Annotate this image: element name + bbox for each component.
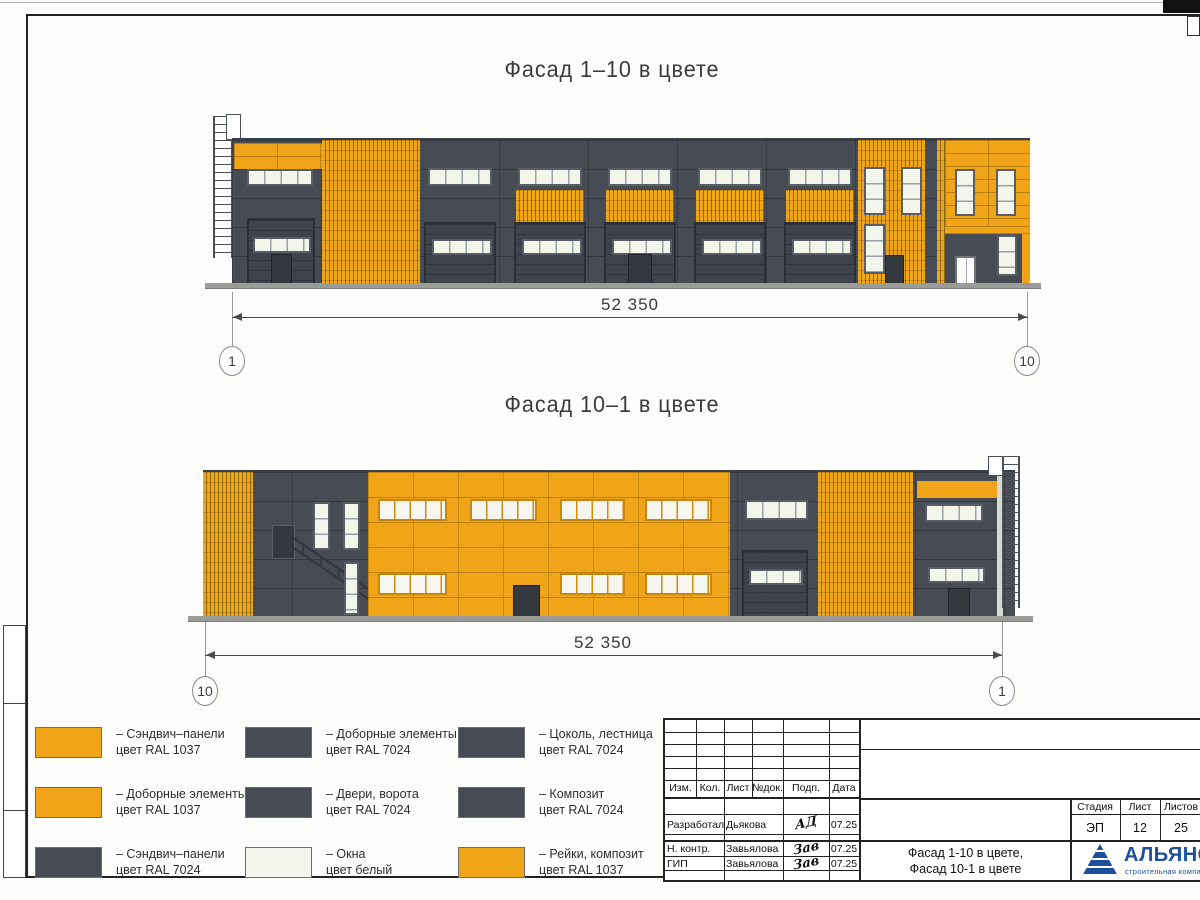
window (928, 567, 985, 583)
legend-label: – Доборные элементыцвет RAL 1037 (116, 786, 247, 819)
window (645, 573, 712, 595)
window (378, 499, 447, 521)
ground-line (188, 616, 1033, 622)
window (522, 239, 582, 255)
sign-date: 07.25 (829, 819, 859, 831)
corner-black-bar (1163, 0, 1200, 13)
facade-1-building (232, 138, 1030, 283)
window (470, 499, 537, 521)
page-top-line (0, 2, 1200, 3)
person-name: Завьялова (726, 858, 782, 870)
window (955, 169, 975, 216)
axis-bubble: 1 (989, 676, 1015, 706)
role-label: Разработал (667, 819, 723, 831)
window (792, 239, 852, 255)
window (901, 167, 922, 215)
window (996, 169, 1016, 216)
ground-line (205, 283, 1041, 289)
legend-item: – Доборные элементыцвет RAL 1037 (35, 787, 247, 819)
window (253, 237, 311, 253)
window (428, 168, 492, 186)
window (645, 499, 712, 521)
orange-panel (917, 481, 1002, 498)
door-white (955, 256, 976, 285)
legend-label: – Доборные элементыцвет RAL 7024 (326, 726, 457, 759)
window (702, 239, 762, 255)
margin-cells (3, 625, 26, 878)
gate (514, 222, 586, 285)
drawing-sheet: Фасад 1–10 в цвете (0, 0, 1200, 900)
dimension-line (205, 655, 1002, 656)
legend-swatch (458, 847, 525, 878)
rev-header: Кол. (696, 782, 724, 794)
signature: АД (783, 816, 829, 831)
legend-swatch (458, 727, 525, 758)
orange-panel (234, 143, 322, 169)
gate (247, 218, 315, 285)
person-name: Дьякова (726, 819, 782, 831)
frame-top (26, 14, 1200, 16)
window (344, 562, 359, 615)
roof-ladder (1002, 456, 1020, 608)
doc-title: Фасад 1-10 в цвете, (861, 846, 1070, 860)
rev-header: Дата (829, 782, 859, 794)
slat-panel (322, 140, 420, 285)
title-block: Изм. Кол. Лист №док. Подп. Дата Разработ… (663, 718, 1200, 882)
person-name: Завьялова (726, 843, 782, 855)
window (247, 169, 313, 186)
stage-header: Стадия (1070, 801, 1120, 813)
legend-item: – Композитцвет RAL 7024 (458, 787, 624, 819)
window (864, 167, 885, 215)
axis-bubble: 10 (192, 676, 218, 706)
facade-2-title: Фасад 10–1 в цвете (330, 391, 894, 418)
role-label: ГИП (667, 858, 723, 870)
legend-swatch (35, 787, 102, 818)
dim-arrow-icon (1018, 313, 1027, 321)
legend-item: – Сэндвич–панелицвет RAL 1037 (35, 727, 225, 759)
gate (784, 222, 856, 285)
dim-arrow-icon (233, 313, 242, 321)
legend-item: – Цоколь, лестницацвет RAL 7024 (458, 727, 653, 759)
legend-swatch (35, 847, 102, 878)
rev-header: №док. (752, 782, 783, 794)
dimension-line (232, 317, 1028, 318)
margin-cell-divider (4, 703, 25, 704)
slat-tower (818, 472, 913, 618)
margin-cell-divider (4, 810, 25, 811)
legend-label: – Окнацвет белый (326, 846, 392, 879)
gate (424, 222, 496, 285)
legend-item: – Рейки, композитцвет RAL 1037 (458, 847, 644, 879)
legend-item: – Сэндвич–панелицвет RAL 7024 (35, 847, 225, 879)
stage-header: Лист (1120, 801, 1160, 813)
role-label: Н. контр. (667, 843, 723, 855)
sign-date: 07.25 (829, 843, 859, 855)
sheet-count: 25 (1160, 821, 1200, 835)
window (745, 500, 808, 520)
slat-tower (858, 140, 925, 285)
stage-header: Листов (1160, 801, 1200, 813)
legend-swatch (245, 787, 312, 818)
window (313, 502, 330, 550)
window (864, 224, 885, 274)
legend-label: – Двери, воротацвет RAL 7024 (326, 786, 419, 819)
roof-mast (988, 456, 1003, 476)
dimension-label: 52 350 (330, 295, 930, 315)
dim-arrow-icon (993, 651, 1002, 659)
stage-value: ЭП (1070, 821, 1120, 835)
gate (742, 550, 808, 618)
slat-panel (786, 190, 854, 222)
window (343, 502, 360, 550)
logo-subtitle: строительная компания (1125, 867, 1200, 876)
orange-field (368, 472, 730, 618)
extension-line (1027, 292, 1028, 348)
door (271, 254, 292, 285)
window (518, 168, 582, 186)
doc-title: Фасад 10-1 в цвете (861, 862, 1070, 876)
window (608, 168, 672, 186)
dim-arrow-icon (206, 651, 215, 659)
slat-panel (203, 472, 253, 618)
window (378, 573, 447, 595)
legend-label: – Сэндвич–панелицвет RAL 1037 (116, 726, 225, 759)
orange-band (945, 226, 1030, 234)
legend-item: – Доборные элементыцвет RAL 7024 (245, 727, 457, 759)
sign-date: 07.25 (829, 858, 859, 870)
signature: Зав (783, 856, 829, 871)
door (628, 254, 652, 285)
axis-bubble: 1 (219, 346, 245, 376)
logo-pyramid-icon (1082, 844, 1118, 876)
orange-edge (1022, 234, 1030, 285)
sheet-number: 12 (1120, 821, 1160, 835)
window (560, 499, 625, 521)
logo-name: АЛЬЯНС (1124, 844, 1200, 867)
rev-header: Изм. (665, 782, 696, 794)
door (513, 585, 540, 618)
legend-label: – Рейки, композитцвет RAL 1037 (539, 846, 644, 879)
company-logo: АЛЬЯНС строительная компания (1070, 840, 1200, 880)
frame-left (26, 14, 28, 878)
facade-1-title: Фасад 1–10 в цвете (330, 56, 894, 83)
legend-item: – Окнацвет белый (245, 847, 392, 879)
window (698, 168, 762, 186)
window (749, 569, 803, 585)
facade-2-building (203, 470, 1015, 616)
legend-swatch (35, 727, 102, 758)
window (788, 168, 852, 186)
roof-mast (226, 114, 241, 140)
window (997, 235, 1017, 276)
frame-zone-box (1187, 16, 1200, 36)
legend-item: – Двери, воротацвет RAL 7024 (245, 787, 419, 819)
slat-panel (696, 190, 764, 222)
window (432, 239, 492, 255)
extension-line (1002, 622, 1003, 678)
rev-header: Лист (724, 782, 752, 794)
legend-swatch (245, 727, 312, 758)
signature: Зав (783, 841, 829, 856)
door (948, 588, 970, 618)
corner-section (945, 140, 1030, 285)
gate (694, 222, 766, 285)
legend-label: – Цоколь, лестницацвет RAL 7024 (539, 726, 653, 759)
door (885, 255, 904, 285)
window (612, 239, 672, 255)
extension-line (205, 622, 206, 678)
legend-label: – Композитцвет RAL 7024 (539, 786, 624, 819)
slat-panel (606, 190, 674, 222)
legend-label: – Сэндвич–панелицвет RAL 7024 (116, 846, 225, 879)
legend-swatch (458, 787, 525, 818)
legend-swatch (245, 847, 312, 878)
rev-header: Подп. (783, 782, 829, 794)
dimension-label: 52 350 (303, 633, 903, 653)
slat-panel (516, 190, 584, 222)
axis-bubble: 10 (1014, 346, 1040, 376)
window (925, 504, 983, 522)
window (560, 573, 625, 595)
